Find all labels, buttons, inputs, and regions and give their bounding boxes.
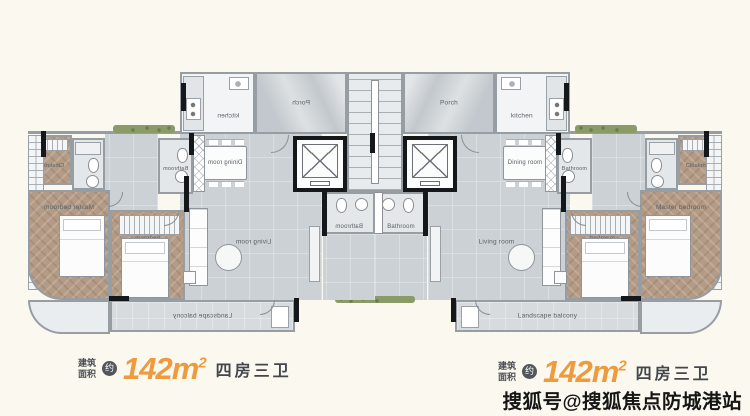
elevator-shaft <box>403 136 457 192</box>
room-label: Living room <box>428 238 565 245</box>
wall <box>41 131 46 157</box>
area-number: 142m <box>123 351 198 386</box>
floorplan-page: Porch kitchen Bathroom Dining roo <box>0 0 750 416</box>
wall <box>184 176 189 212</box>
sink-icon <box>86 175 99 188</box>
wall <box>181 83 186 111</box>
curved-bay-window <box>640 300 722 334</box>
dining-table-icon: Dining room <box>203 146 247 180</box>
planter-icon <box>113 125 175 133</box>
floor-plan: Porch kitchen Bathroom Dining roo <box>25 58 725 348</box>
room-label: Bathroom <box>377 224 425 230</box>
wall <box>322 192 327 236</box>
room-bedroom: bedroom <box>110 210 185 300</box>
room-bathroom-ensuite <box>645 138 678 190</box>
room-label: Bathroom <box>325 224 373 230</box>
bed-icon <box>59 215 105 277</box>
room-bathroom-center: Bathroom <box>323 192 375 234</box>
toilet-icon <box>403 198 414 213</box>
toilet-icon <box>651 158 662 173</box>
wall <box>621 296 641 301</box>
room-label: Dining room <box>204 160 246 166</box>
curved-bay-window <box>28 300 110 334</box>
wall <box>564 83 569 111</box>
wall <box>109 296 129 301</box>
room-label: Porch <box>405 100 493 107</box>
area-label: 建筑 面积 <box>78 358 96 379</box>
toilet-icon <box>336 198 347 213</box>
room-kitchen: kitchen <box>495 72 570 134</box>
room-living: Living room <box>428 192 565 300</box>
center-hall-floor <box>323 234 375 300</box>
area-label-line2: 面积 <box>498 372 516 382</box>
wall <box>556 133 561 155</box>
room-porch: Porch <box>403 72 495 134</box>
area-sup: 2 <box>618 358 625 375</box>
watermark: 搜狐号@搜狐焦点防城港站 <box>502 385 742 414</box>
stove-icon <box>186 98 201 120</box>
toilet-icon <box>177 148 188 163</box>
stool-icon <box>183 271 196 284</box>
area-number: 142m <box>543 354 618 389</box>
kitchen-sink-icon <box>501 77 521 90</box>
toilet-icon <box>562 148 573 163</box>
wall <box>375 133 380 153</box>
room-kitchen: kitchen <box>180 72 255 134</box>
kitchen-sink-icon <box>229 77 249 90</box>
layout-text: 四房三卫 <box>216 357 292 381</box>
tv-bench-icon <box>309 226 320 282</box>
area-label-line2: 面积 <box>78 369 96 379</box>
area-value: 142m2 <box>543 356 626 387</box>
dining-chairs-icon <box>506 181 544 187</box>
layout-text: 四房三卫 <box>636 360 712 384</box>
elevator-shaft <box>293 136 347 192</box>
room-porch: Porch <box>255 72 347 134</box>
wall <box>704 131 709 157</box>
wall <box>370 133 375 153</box>
room-label: Living room <box>185 238 322 245</box>
elevator-door-icon <box>310 181 330 186</box>
spec-right: 建筑 面积 约 142m2 四房三卫 <box>498 356 712 387</box>
room-living: Living room <box>185 192 322 300</box>
dining-chairs-icon <box>206 139 244 145</box>
wall <box>451 298 456 322</box>
coffee-table-icon <box>215 244 242 271</box>
room-bathroom-center: Bathroom <box>375 192 427 234</box>
room-label: Master bedroom <box>30 204 108 211</box>
spec-left: 建筑 面积 约 142m2 四房三卫 <box>78 353 292 384</box>
wall <box>561 176 566 212</box>
shower-icon <box>649 142 675 155</box>
room-label: kitchen <box>497 113 547 120</box>
stool-icon <box>554 271 567 284</box>
bed-icon <box>581 238 629 298</box>
wall <box>423 192 428 236</box>
elevator-door-icon <box>420 181 440 186</box>
sink-icon <box>355 198 368 211</box>
area-value: 142m2 <box>123 353 206 384</box>
room-label: Master bedroom <box>642 204 720 211</box>
unit-left: Porch kitchen Bathroom Dining roo <box>25 58 375 348</box>
duct-shaft-icon <box>193 135 205 192</box>
dining-table-icon: Dining room <box>503 146 547 180</box>
area-label-line1: 建筑 <box>498 361 516 371</box>
room-bedroom: bedroom <box>565 210 640 300</box>
area-label: 建筑 面积 <box>498 361 516 382</box>
bed-icon <box>121 238 169 298</box>
room-label: Bathroom <box>559 166 590 172</box>
room-label: kitchen <box>203 113 253 120</box>
shower-icon <box>75 142 101 155</box>
tv-bench-icon <box>430 226 441 282</box>
dining-chairs-icon <box>506 139 544 145</box>
planter-icon <box>575 125 637 133</box>
unit-right: Porch kitchen Bathroom Dining roo <box>375 58 725 348</box>
area-label-line1: 建筑 <box>78 358 96 368</box>
stove-icon <box>549 98 564 120</box>
wall <box>294 298 299 322</box>
approx-badge: 约 <box>522 364 537 379</box>
center-hall-floor <box>375 234 427 300</box>
coffee-table-icon <box>508 244 535 271</box>
room-label: Bathroom <box>160 166 191 172</box>
sink-icon <box>382 198 395 211</box>
sink-icon <box>651 175 664 188</box>
room-bathroom-ensuite <box>72 138 105 190</box>
approx-badge: 约 <box>102 361 117 376</box>
room-master-bedroom: Master bedroom <box>28 190 110 300</box>
toilet-icon <box>88 158 99 173</box>
room-label: Dining room <box>504 160 546 166</box>
elevator-icon <box>302 144 338 178</box>
elevator-icon <box>412 144 448 178</box>
wall <box>189 133 194 155</box>
room-master-bedroom: Master bedroom <box>640 190 722 300</box>
bed-icon <box>645 215 691 277</box>
dining-chairs-icon <box>206 181 244 187</box>
area-sup: 2 <box>198 355 205 372</box>
room-label: Porch <box>257 100 345 107</box>
